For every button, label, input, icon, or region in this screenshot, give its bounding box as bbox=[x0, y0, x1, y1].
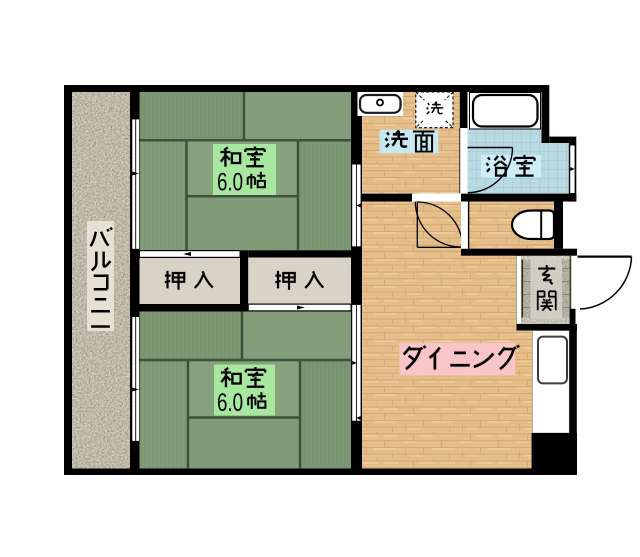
svg-text:6.0: 6.0 bbox=[217, 168, 243, 196]
svg-text:6.0: 6.0 bbox=[217, 388, 243, 416]
